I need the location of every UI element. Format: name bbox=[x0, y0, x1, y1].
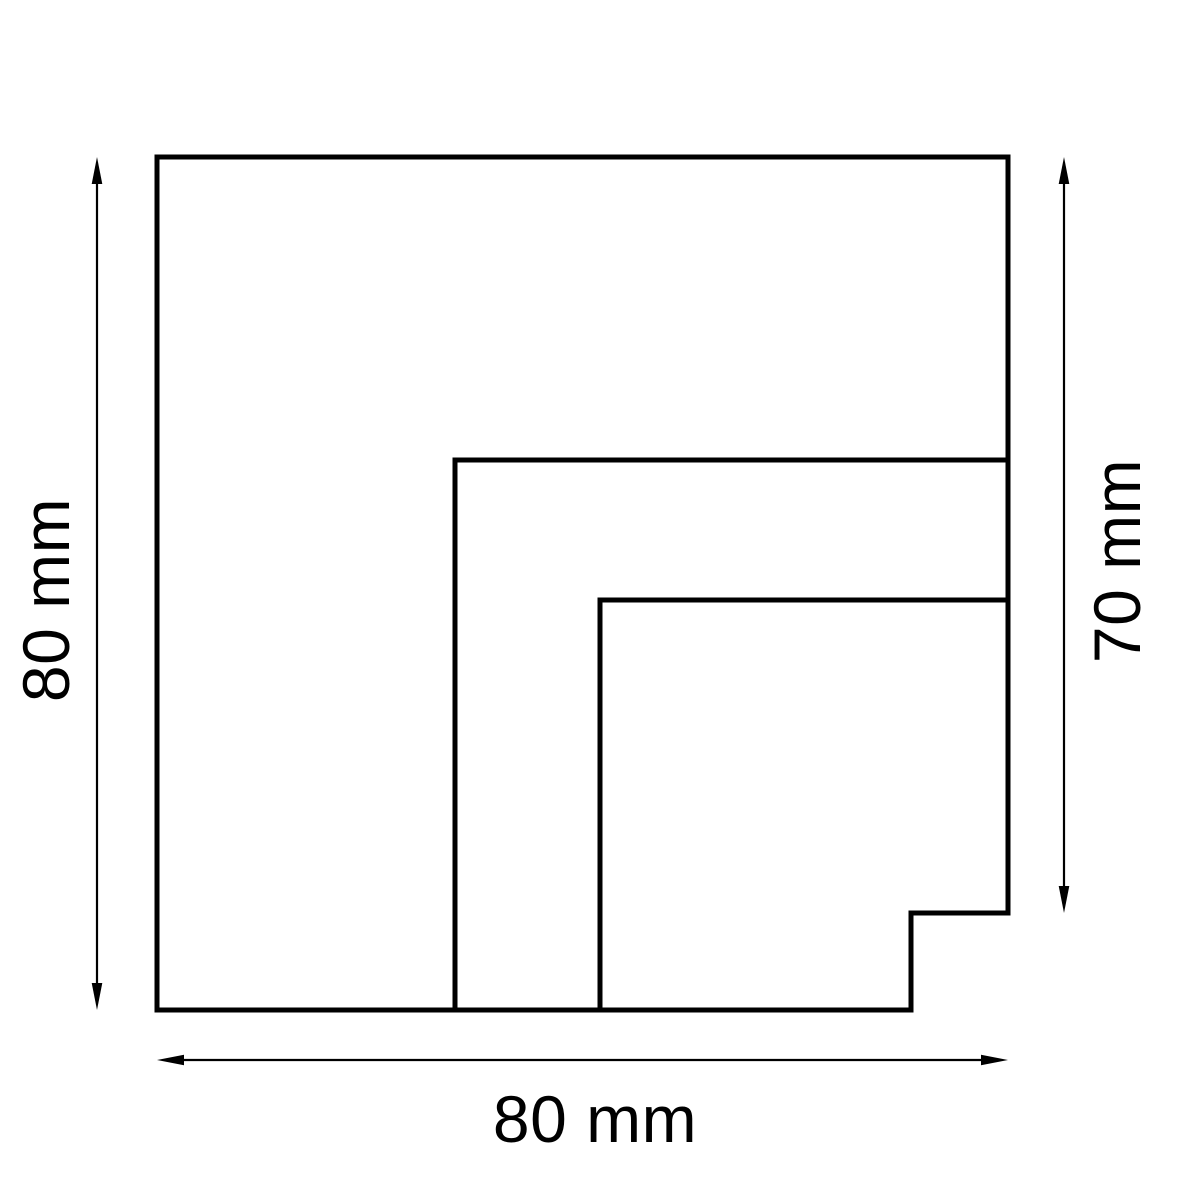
drawing-canvas: 80 mm 70 mm 80 mm bbox=[0, 0, 1198, 1200]
left-dimension-arrow-up-icon bbox=[92, 157, 103, 184]
right-dimension-arrow-up-icon bbox=[1059, 157, 1070, 184]
right-dimension: 70 mm bbox=[1059, 157, 1154, 913]
inner-profile-line-outer bbox=[455, 460, 1008, 1010]
inner-profile-line-inner bbox=[600, 600, 1008, 1010]
left-dimension-label: 80 mm bbox=[9, 498, 83, 702]
bottom-dimension-arrow-left-icon bbox=[157, 1055, 184, 1066]
bottom-dimension-arrow-right-icon bbox=[981, 1055, 1008, 1066]
left-dimension-arrow-down-icon bbox=[92, 983, 103, 1010]
left-dimension: 80 mm bbox=[9, 157, 102, 1010]
outer-profile-outline bbox=[157, 157, 1008, 1010]
right-dimension-arrow-down-icon bbox=[1059, 886, 1070, 913]
bottom-dimension-label: 80 mm bbox=[493, 1082, 697, 1156]
dimension-drawing: 80 mm 70 mm 80 mm bbox=[0, 0, 1198, 1200]
bottom-dimension: 80 mm bbox=[157, 1055, 1008, 1156]
right-dimension-label: 70 mm bbox=[1080, 459, 1154, 663]
